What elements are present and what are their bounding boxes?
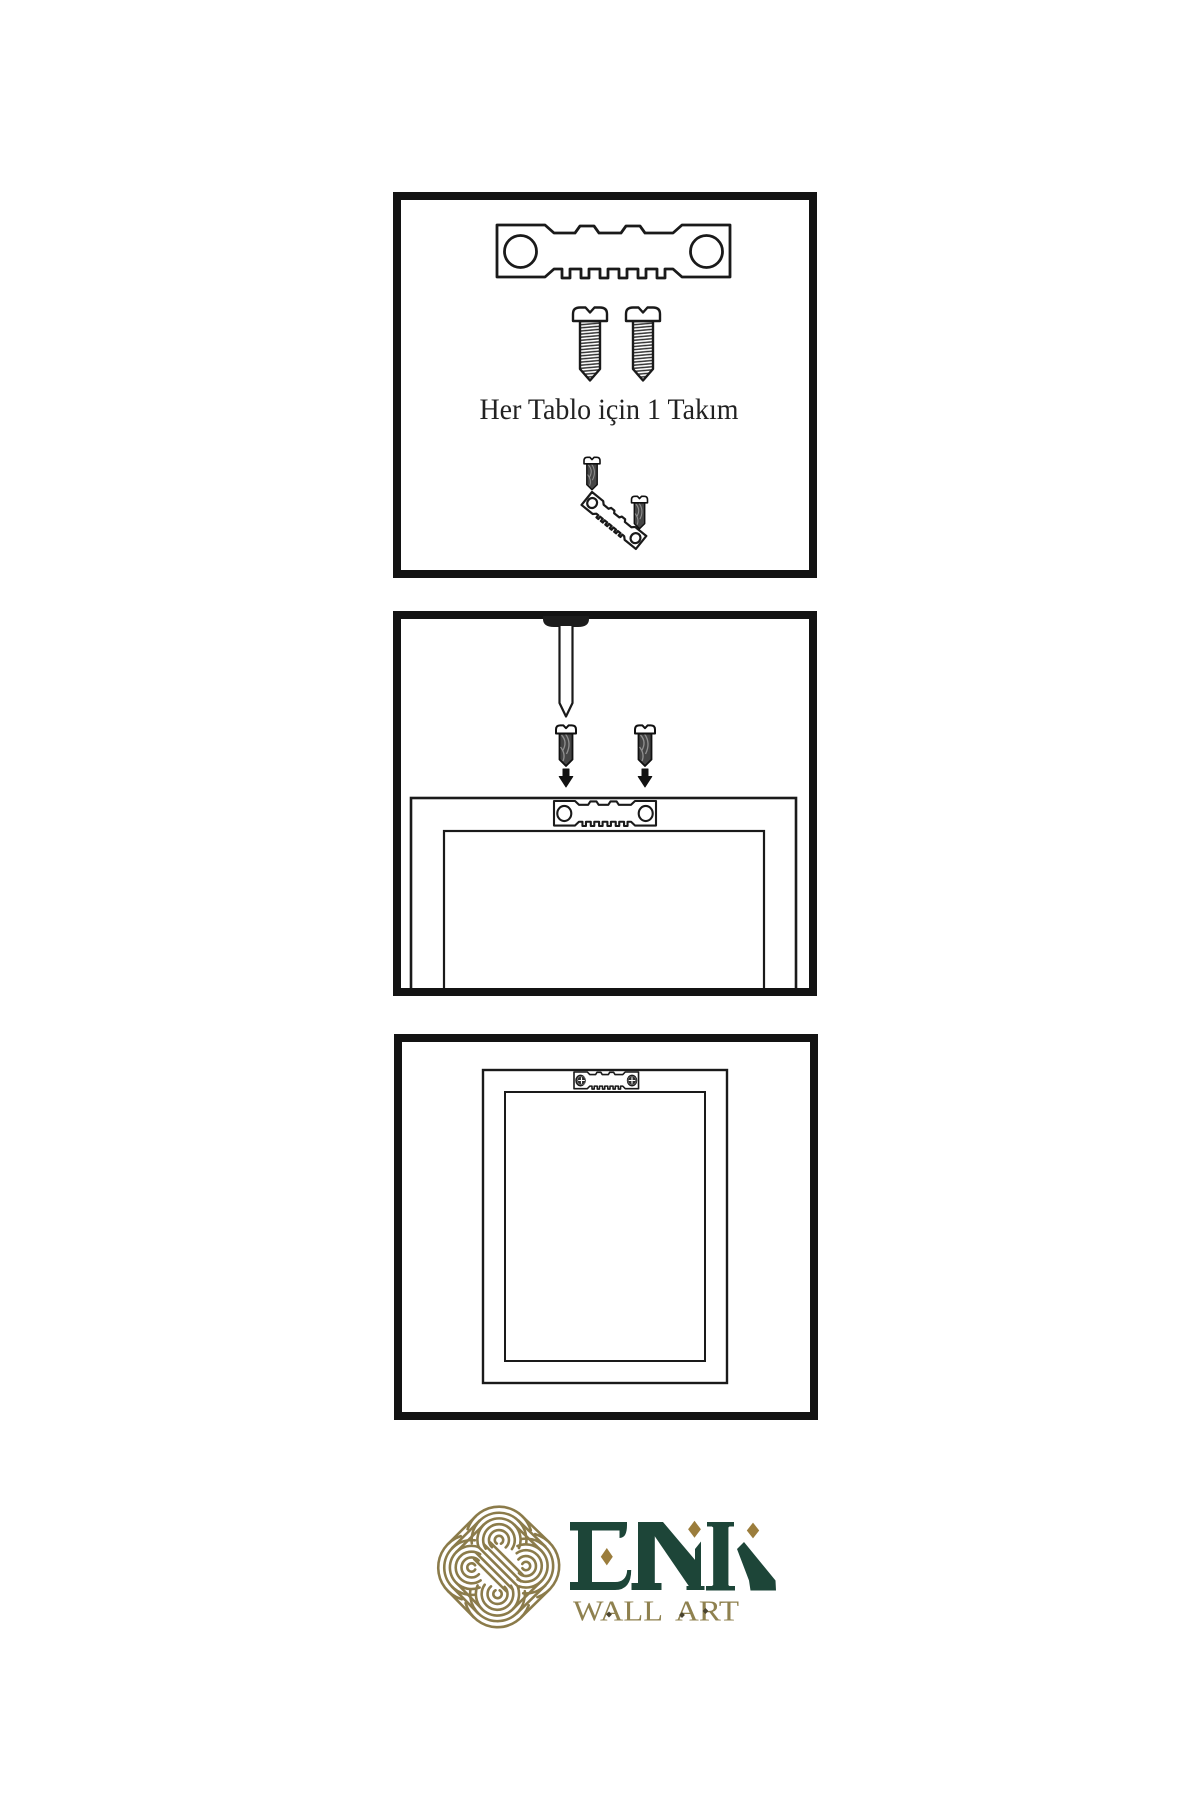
- svg-text:WALL: WALL: [573, 1596, 663, 1628]
- svg-text:Her Tablo için 1 Takım: Her Tablo için 1 Takım: [480, 393, 739, 426]
